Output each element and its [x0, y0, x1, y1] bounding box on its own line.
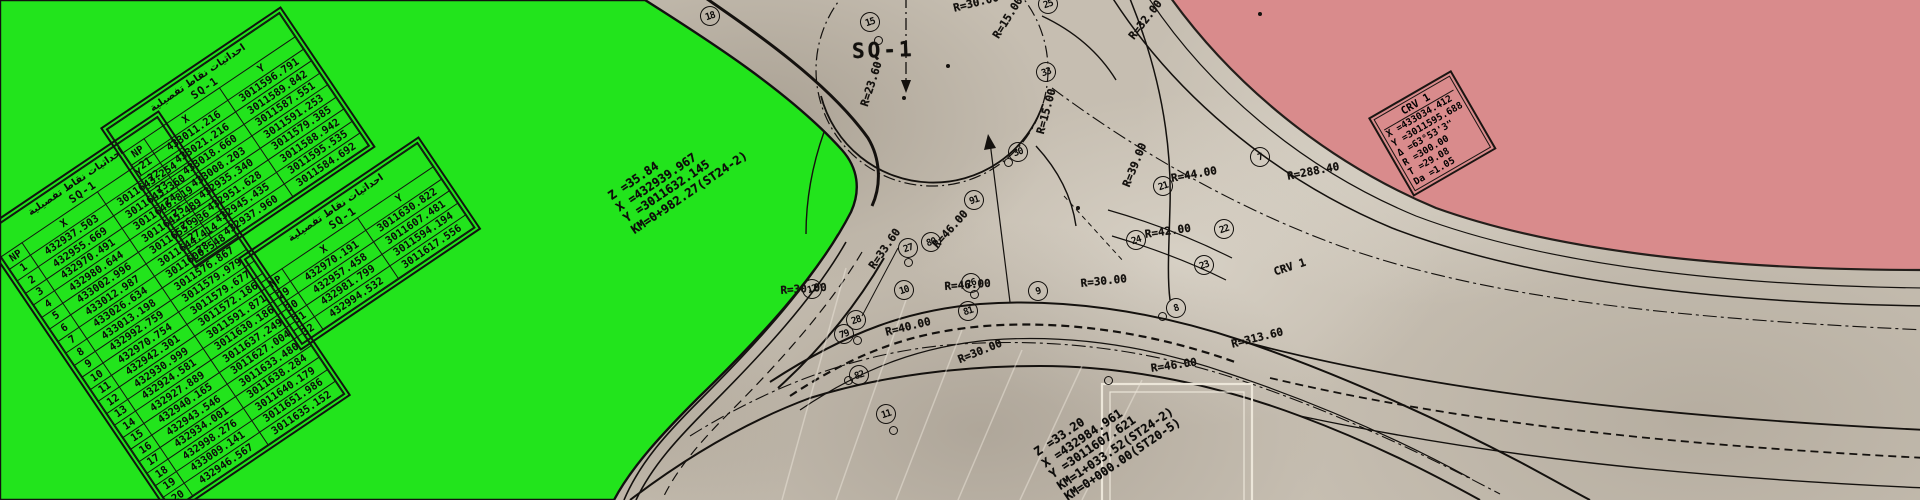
drawing-canvas[interactable]: SQ-1 احداثيات نقاط تفصيليةSQ-1NPXY143293… [0, 0, 1920, 500]
survey-marker [904, 258, 913, 267]
survey-marker [970, 290, 979, 299]
survey-marker [853, 336, 862, 345]
survey-marker [1004, 158, 1013, 167]
pink-area [1168, 0, 1920, 270]
survey-marker [874, 36, 883, 45]
survey-marker [889, 426, 898, 435]
survey-marker [1158, 312, 1167, 321]
line-dot [902, 96, 906, 100]
line-dot [946, 64, 950, 68]
line-dot [1258, 12, 1262, 16]
survey-marker [1104, 376, 1113, 385]
line-dot [1076, 206, 1080, 210]
square-title: SQ-1 [852, 37, 915, 63]
survey-marker [844, 376, 853, 385]
